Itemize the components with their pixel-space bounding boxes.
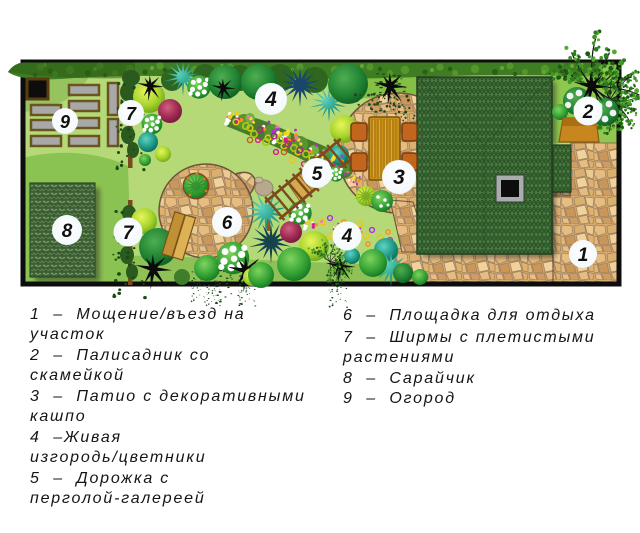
svg-text:7: 7 (126, 104, 137, 124)
svg-text:4: 4 (341, 226, 353, 247)
svg-text:2: 2 (582, 102, 594, 123)
svg-text:9: 9 (60, 112, 70, 132)
svg-text:1 – Мощение/въезд на: 1 – Мощение/въезд на (30, 306, 246, 323)
svg-text:участок: участок (29, 326, 105, 343)
svg-text:4 –Живая: 4 –Живая (30, 429, 122, 446)
svg-text:4: 4 (264, 88, 277, 111)
svg-text:7: 7 (123, 223, 135, 244)
svg-text:1: 1 (578, 245, 589, 266)
svg-text:растениями: растениями (342, 349, 455, 366)
svg-text:6: 6 (222, 213, 233, 234)
svg-text:изгородь/цветники: изгородь/цветники (30, 449, 206, 466)
svg-text:скамейкой: скамейкой (30, 367, 125, 384)
svg-text:6 – Площадка для отдыха: 6 – Площадка для отдыха (343, 307, 596, 324)
svg-text:9 – Огород: 9 – Огород (343, 390, 456, 407)
svg-text:8: 8 (62, 221, 73, 242)
svg-text:5 – Дорожка с: 5 – Дорожка с (30, 470, 170, 487)
svg-text:кашпо: кашпо (30, 408, 86, 425)
svg-text:2 – Палисадник со: 2 – Палисадник со (29, 347, 210, 364)
svg-text:3: 3 (393, 166, 405, 189)
svg-text:5: 5 (312, 164, 323, 185)
svg-text:7 – Ширмы с плетистыми: 7 – Ширмы с плетистыми (343, 329, 596, 346)
svg-text:3 – Патио с декоративными: 3 – Патио с декоративными (30, 388, 306, 405)
svg-text:8 – Сарайчик: 8 – Сарайчик (343, 370, 476, 387)
svg-text:перголой-галереей: перголой-галереей (30, 490, 206, 507)
